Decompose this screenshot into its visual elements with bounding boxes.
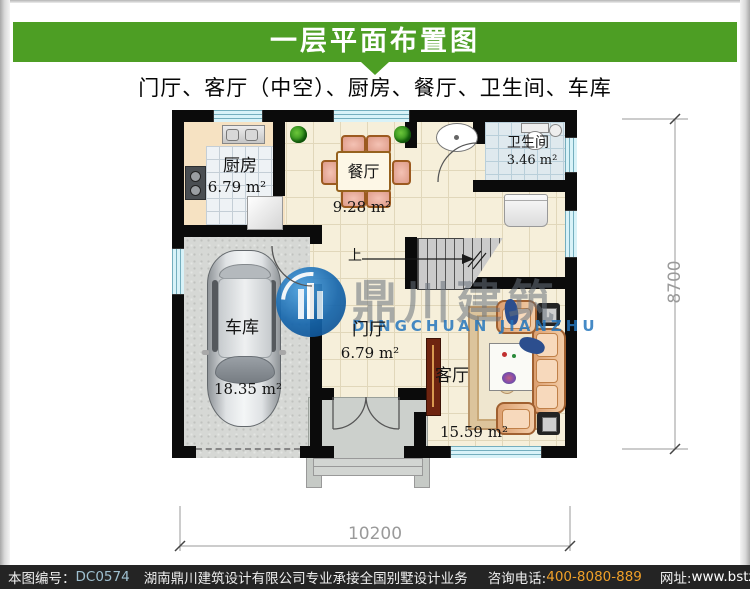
- garage-door-dashed: [196, 448, 300, 450]
- dining-table: 餐厅: [336, 151, 391, 192]
- table-decor: [512, 354, 516, 358]
- living-area: 15.59 m²: [424, 424, 524, 441]
- garage-label: 车库: [207, 319, 277, 338]
- wall-garage-right: [310, 237, 322, 244]
- fridge: [247, 196, 283, 230]
- bathroom-area: 3.46 m²: [492, 154, 572, 168]
- dimension-width-value: 10200: [340, 524, 410, 544]
- logo-building-bar: [298, 289, 304, 319]
- room-list-subtitle: 门厅、客厅（中空）、厨房、餐厅、卫生间、车库: [0, 72, 750, 102]
- website-label: 网址:: [660, 567, 692, 587]
- sink-bowl: [226, 129, 239, 141]
- wall-foyer-south: [398, 388, 426, 400]
- plant-icon: [290, 126, 307, 143]
- kitchen-label: 厨房: [200, 157, 280, 176]
- wall: [172, 446, 196, 458]
- window: [565, 210, 577, 258]
- window: [213, 110, 263, 122]
- car-topview: [207, 250, 281, 427]
- page-top-edge: [0, 0, 750, 3]
- window: [172, 248, 184, 295]
- kitchen-sink: [222, 125, 265, 144]
- sink-bowl: [245, 129, 258, 141]
- page-title: 一层平面布置图: [13, 22, 737, 62]
- car-mirror: [202, 350, 209, 355]
- table-decor: [502, 352, 507, 357]
- dining-room-label: 餐厅: [347, 163, 379, 181]
- car-mirror: [279, 350, 286, 355]
- table-flowers: [502, 372, 516, 384]
- kitchen-area: 6.79 m²: [192, 179, 282, 196]
- drawing-code-label: 本图编号：: [8, 567, 76, 587]
- foyer-label: 门厅: [334, 321, 404, 340]
- wall: [404, 446, 450, 458]
- drawing-code: DC0574: [76, 569, 130, 585]
- porch-steps: [313, 458, 423, 476]
- sofa-cushion: [536, 359, 558, 383]
- phone-label: 咨询电话:: [488, 567, 547, 587]
- lamp: [542, 417, 557, 432]
- wash-basin: [436, 123, 478, 152]
- phone-number: 400-8080-889: [546, 569, 642, 585]
- wall: [300, 446, 334, 458]
- window: [450, 446, 542, 458]
- company-name: 湖南鼎川建筑设计有限公司专业承接全国别墅设计业务: [144, 567, 468, 587]
- porch-step-line: [314, 466, 422, 467]
- dimension-height-value: 8700: [665, 252, 685, 312]
- floor-plan-page: 一层平面布置图 门厅、客厅（中空）、厨房、餐厅、卫生间、车库: [0, 0, 750, 589]
- living-label: 客厅: [417, 367, 487, 386]
- dining-chair: [392, 160, 411, 185]
- washer-panel-line: [505, 200, 547, 201]
- dining-area: 9.28 m²: [322, 199, 402, 216]
- bathroom-label: 卫生间: [488, 136, 568, 151]
- logo-building-bar: [317, 291, 323, 319]
- side-table-lamp: [537, 412, 560, 435]
- plant-icon: [394, 126, 411, 143]
- garage-area: 18.35 m²: [203, 381, 293, 398]
- wall: [540, 446, 577, 458]
- wall-bath-bottom: [473, 180, 577, 192]
- website-url: www.bstzcs.com: [691, 569, 750, 585]
- window: [333, 110, 410, 122]
- washing-machine: [504, 194, 548, 227]
- stairs-up-label: 上: [346, 249, 364, 264]
- basin-drain: [454, 135, 459, 140]
- footer-bar: 本图编号：DC0574湖南鼎川建筑设计有限公司专业承接全国别墅设计业务咨询电话:…: [0, 565, 750, 589]
- foyer-area: 6.79 m²: [325, 345, 415, 362]
- logo-building-bar: [307, 283, 314, 319]
- sofa-cushion: [536, 385, 558, 409]
- wall-foyer-south: [310, 388, 334, 400]
